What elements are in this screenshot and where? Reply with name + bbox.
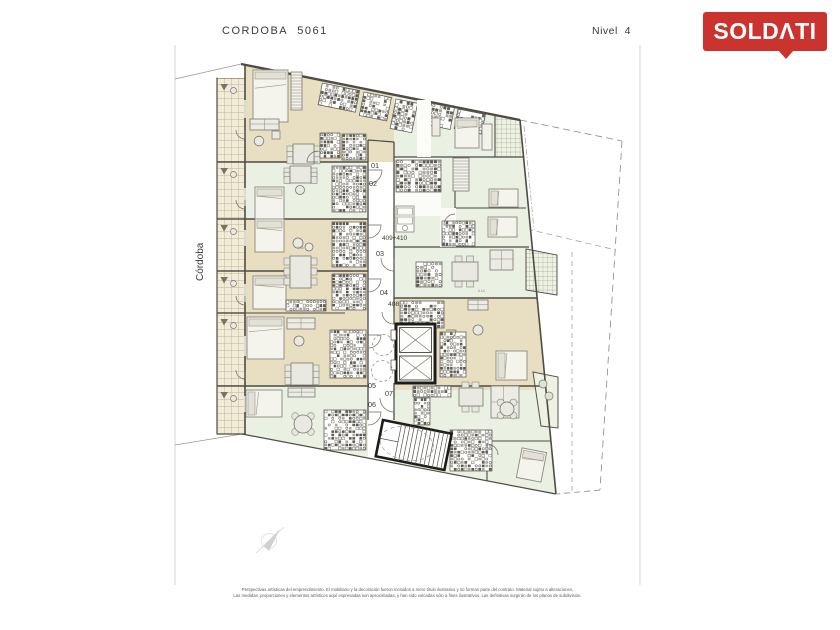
svg-text:03: 03 (376, 249, 384, 258)
svg-text:6.14: 6.14 (478, 289, 485, 293)
svg-text:2.86: 2.86 (297, 246, 304, 250)
svg-text:408: 408 (388, 301, 400, 308)
svg-text:02: 02 (369, 179, 377, 188)
svg-text:04: 04 (380, 288, 388, 297)
svg-text:06: 06 (368, 400, 376, 409)
svg-text:409+410: 409+410 (382, 235, 408, 242)
svg-text:01: 01 (371, 161, 379, 170)
svg-text:07: 07 (385, 389, 393, 398)
svg-text:05: 05 (368, 381, 376, 390)
